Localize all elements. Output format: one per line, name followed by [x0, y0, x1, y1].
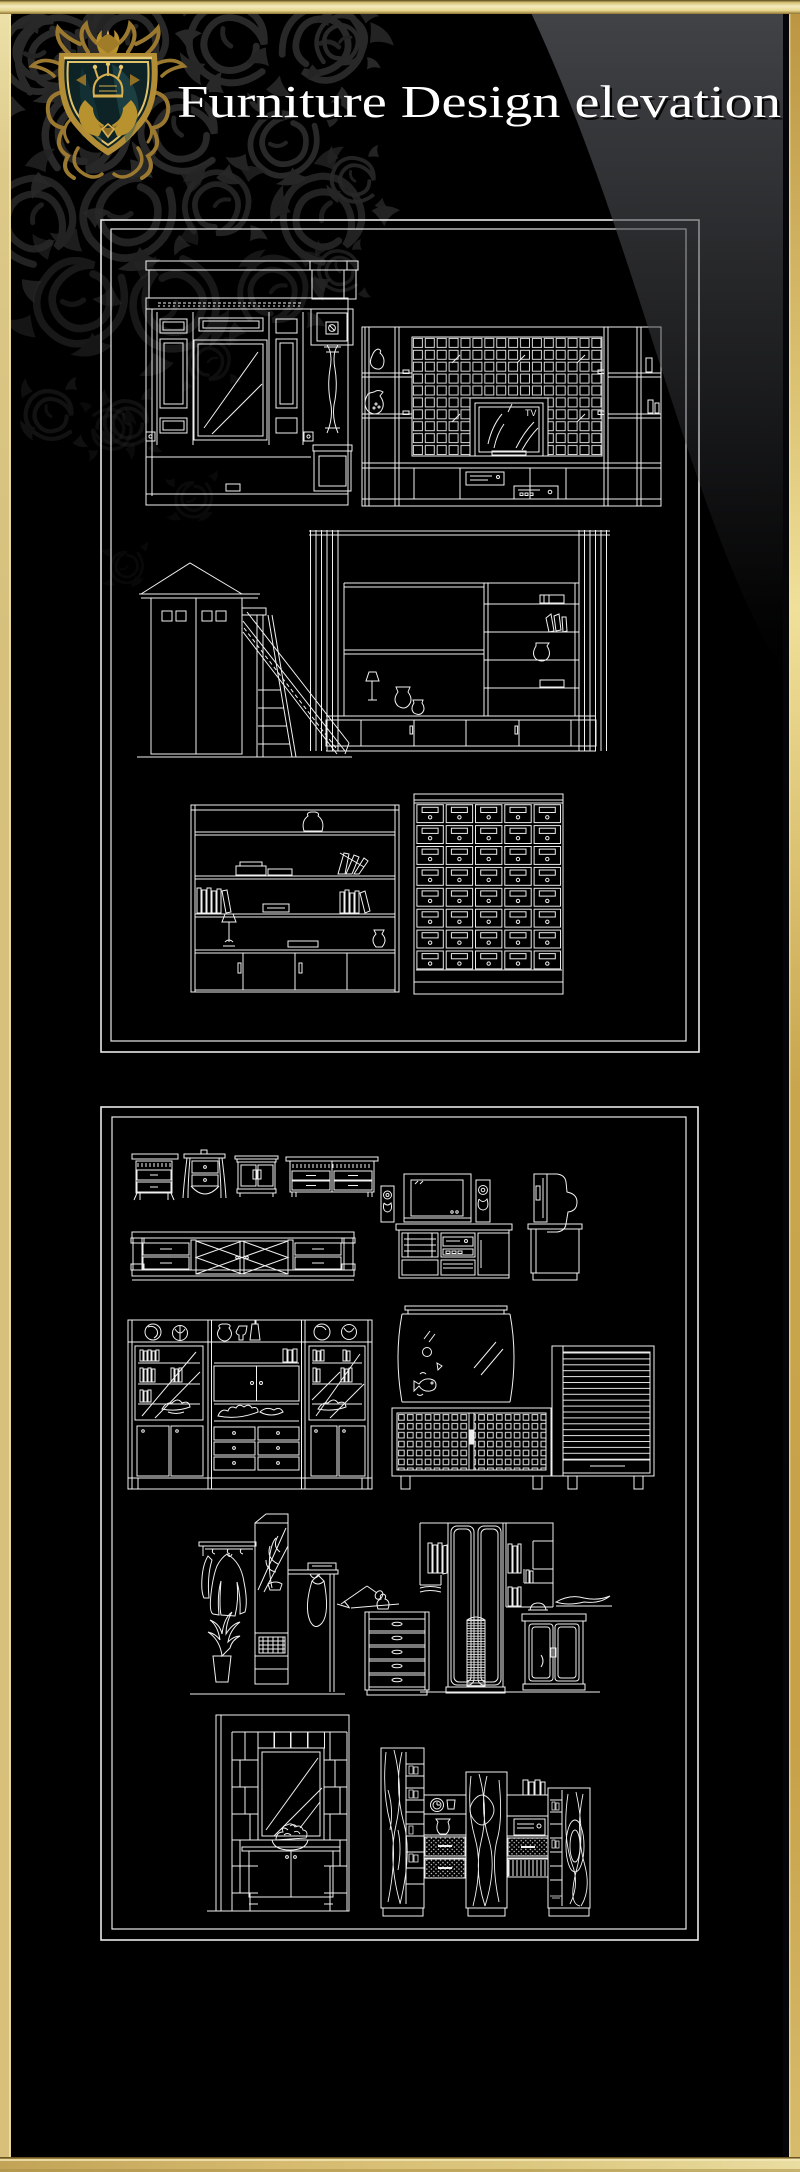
svg-text:TV: TV	[525, 408, 537, 418]
svg-text:Furniture Design elevation: Furniture Design elevation	[177, 76, 781, 127]
